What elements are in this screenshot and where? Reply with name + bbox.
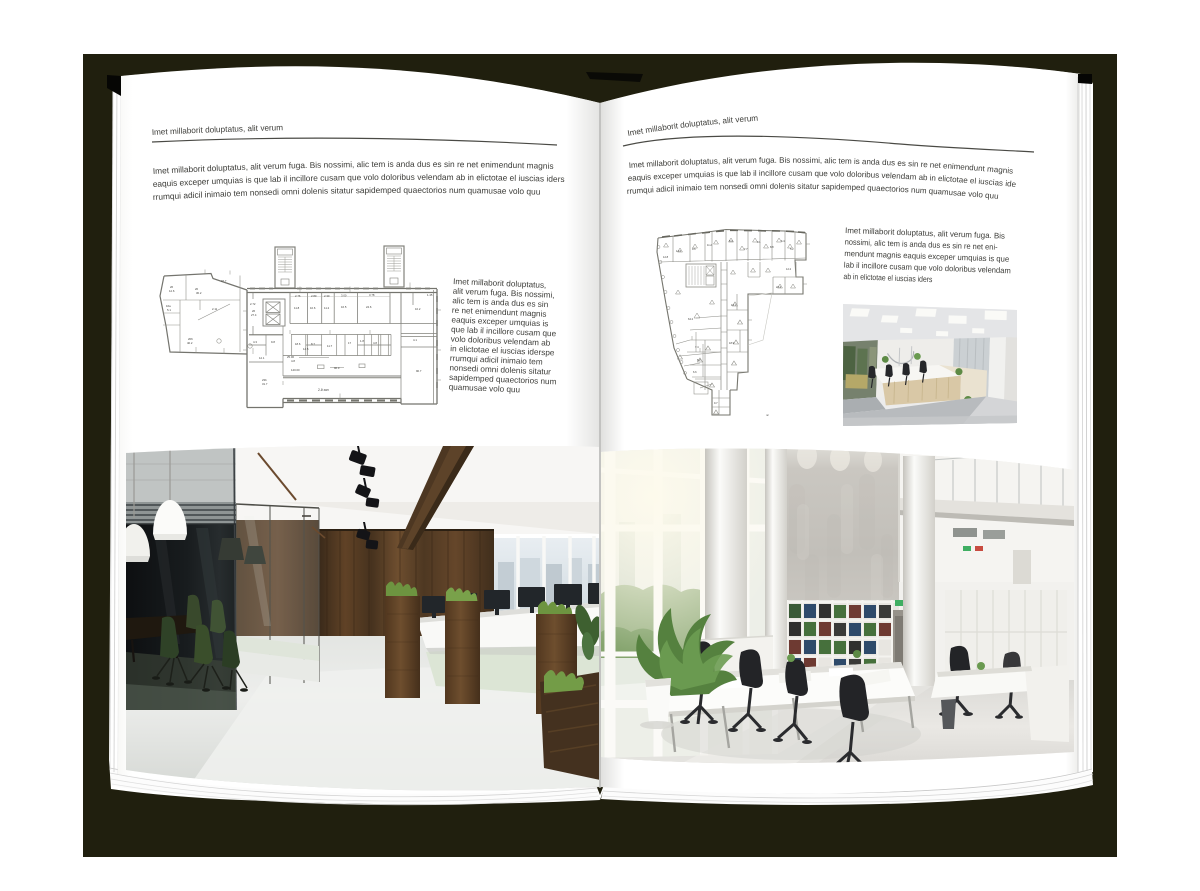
svg-text:18.9: 18.9	[729, 341, 735, 345]
svg-text:11.2: 11.2	[324, 306, 330, 310]
svg-text:8.4: 8.4	[729, 239, 733, 243]
svg-text:9.6: 9.6	[692, 247, 696, 251]
svg-text:22.4: 22.4	[776, 285, 782, 289]
svg-text:1.8: 1.8	[360, 339, 364, 343]
svg-text:11.7: 11.7	[327, 344, 333, 348]
svg-text:8.7: 8.7	[311, 342, 315, 346]
svg-text:8.8: 8.8	[770, 245, 774, 249]
svg-text:2.80: 2.80	[311, 294, 317, 298]
svg-text:7.7: 7.7	[744, 247, 748, 251]
svg-text:90.7: 90.7	[416, 369, 422, 373]
svg-text:7.4: 7.4	[695, 345, 699, 349]
svg-text:4.3: 4.3	[253, 340, 257, 344]
svg-text:14.6: 14.6	[676, 249, 682, 253]
svg-text:2.30: 2.30	[324, 294, 330, 298]
svg-text:5.1: 5.1	[167, 308, 171, 312]
svg-text:4.8: 4.8	[373, 341, 377, 345]
svg-text:64.2: 64.2	[688, 317, 694, 321]
svg-text:10.6: 10.6	[310, 306, 316, 310]
svg-text:9.7: 9.7	[714, 401, 718, 405]
svg-text:2-й зал: 2-й зал	[318, 388, 329, 392]
svg-text:4.8: 4.8	[291, 359, 295, 363]
svg-text:5.2: 5.2	[790, 247, 794, 251]
svg-text:12.1: 12.1	[259, 356, 265, 360]
svg-text:4.1: 4.1	[413, 338, 417, 342]
svg-text:2.76: 2.76	[295, 294, 301, 298]
svg-text:17: 17	[348, 341, 352, 345]
svg-text:37.7: 37.7	[221, 279, 227, 283]
svg-text:6.4: 6.4	[781, 239, 785, 243]
svg-text:3.00: 3.00	[341, 294, 347, 298]
svg-text:10.2: 10.2	[415, 307, 421, 311]
svg-text:11.2: 11.2	[707, 243, 712, 247]
svg-text:9.8: 9.8	[271, 340, 275, 344]
svg-text:16.5: 16.5	[341, 305, 347, 309]
svg-text:30.2: 30.2	[196, 291, 202, 295]
svg-text:9.1: 9.1	[757, 240, 761, 244]
svg-text:140.00: 140.00	[291, 368, 300, 372]
svg-text:18.6: 18.6	[295, 342, 301, 346]
svg-text:2.72: 2.72	[250, 302, 256, 306]
svg-text:11.8: 11.8	[294, 306, 300, 310]
svg-text:12.2: 12.2	[786, 267, 792, 271]
svg-text:14.5: 14.5	[303, 347, 309, 351]
svg-text:31.7: 31.7	[262, 382, 268, 386]
svg-text:2.11: 2.11	[212, 307, 218, 311]
svg-text:8.2: 8.2	[697, 358, 701, 362]
svg-text:40.2: 40.2	[187, 341, 193, 345]
svg-text:12.6: 12.6	[169, 289, 175, 293]
svg-text:96.3: 96.3	[334, 366, 340, 370]
svg-text:12.8: 12.8	[663, 255, 669, 259]
svg-text:27.4: 27.4	[251, 313, 257, 317]
svg-text:24.6: 24.6	[366, 305, 372, 309]
svg-text:1.45: 1.45	[427, 293, 433, 297]
svg-text:3.78: 3.78	[369, 293, 375, 297]
svg-text:16.1: 16.1	[731, 303, 737, 307]
svg-text:6.6: 6.6	[693, 370, 697, 374]
